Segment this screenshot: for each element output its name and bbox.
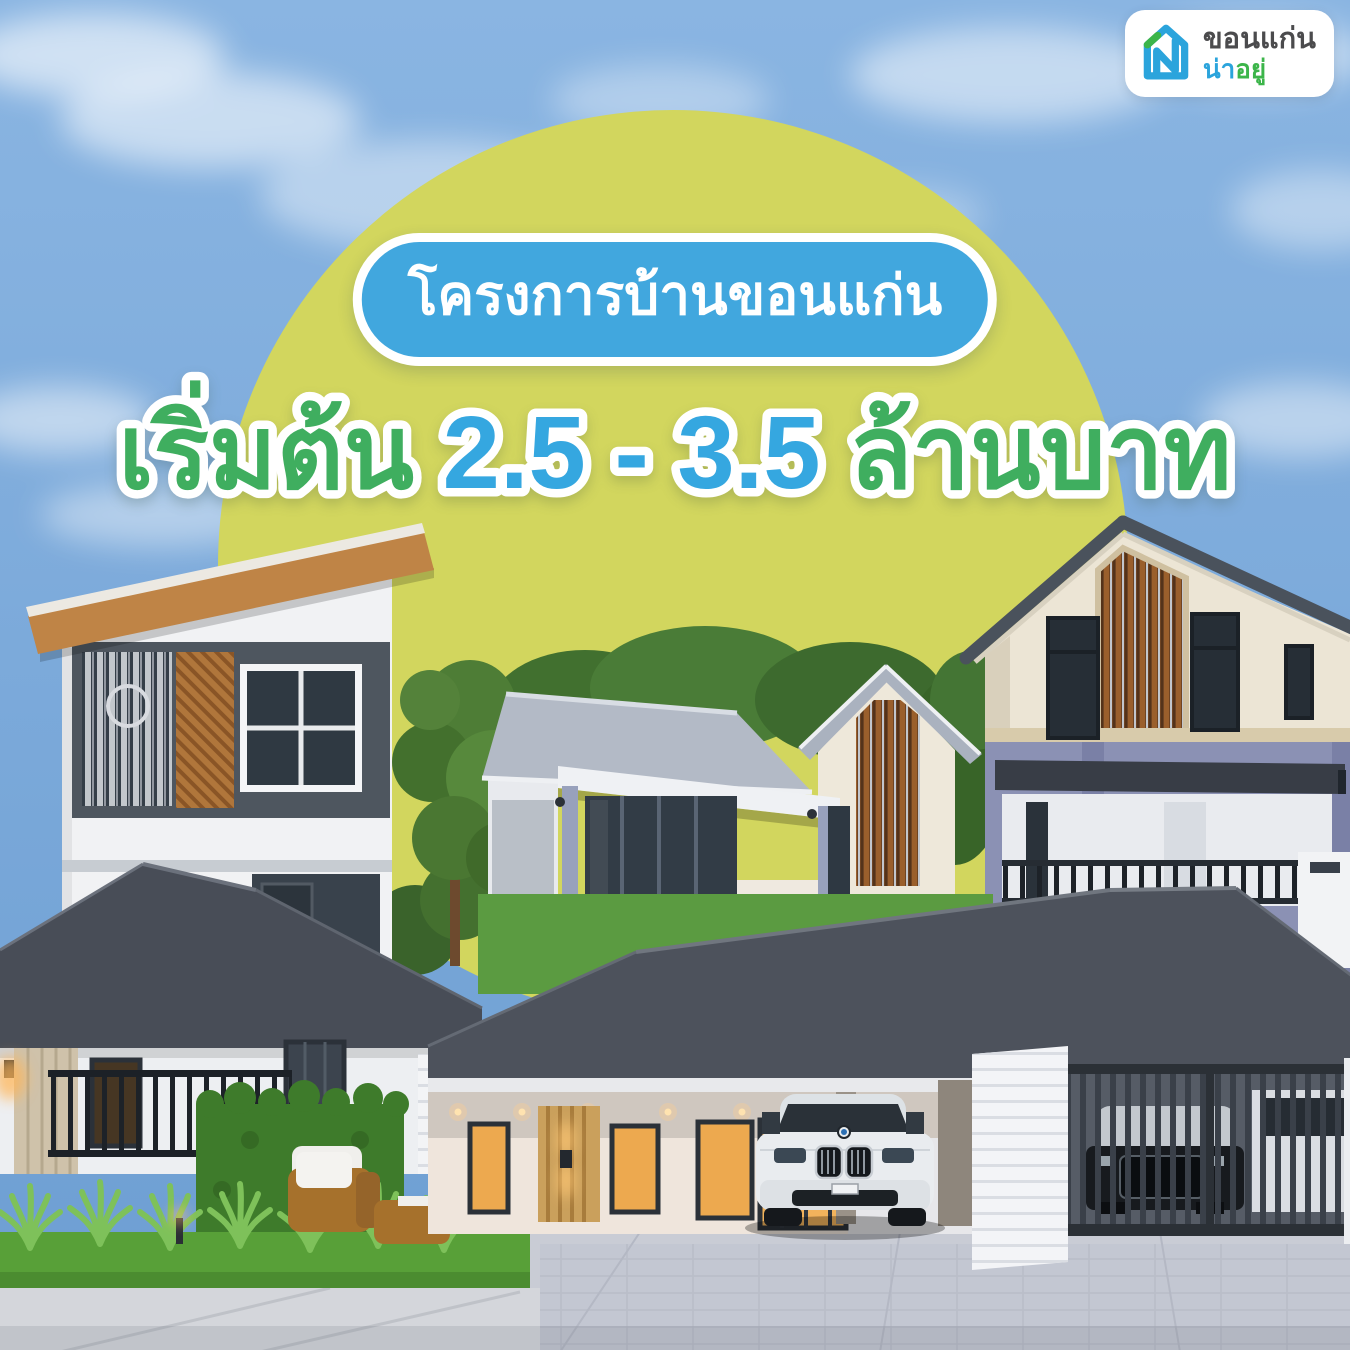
headline-suffix: ล้านบาท [849, 395, 1231, 510]
svg-text:เริ่มต้น 2.5 - 3.5 ล: เริ่มต้น 2.5 - 3.5 ล้านบาท [118, 380, 1231, 510]
project-badge-label: โครงการบ้านขอนแก่น [408, 264, 942, 326]
brand-name-line2: น่าอยู่ [1203, 55, 1316, 83]
brand-logo: ขอนแก่น น่าอยู่ [1125, 10, 1334, 97]
wood-slat-gable [856, 700, 920, 890]
headline-price-range: 2.5 - 3.5 [443, 395, 821, 510]
poster: โครงการบ้านขอนแก่น เริ่มต้น 2.5 - 3.5 ล้… [0, 0, 1350, 1350]
hero-collage-illustration [0, 0, 1350, 1350]
dark-canopy [995, 760, 1345, 794]
brand-name: ขอนแก่น น่าอยู่ [1203, 24, 1316, 83]
brand-name-line2-green: อยู่ [1235, 54, 1266, 84]
brand-name-line2-blue: น่า [1203, 54, 1235, 84]
wall-sconce [560, 1150, 572, 1168]
metal-gate [1068, 1058, 1350, 1244]
project-badge: โครงการบ้านขอนแก่น [353, 233, 997, 366]
white-fence-panel [972, 1046, 1068, 1270]
headline: เริ่มต้น 2.5 - 3.5 ล้านบาท [0, 360, 1350, 545]
house-n-logo-icon [1139, 22, 1193, 85]
headline-prefix: เริ่มต้น [118, 380, 442, 510]
brand-name-line1: ขอนแก่น [1203, 24, 1316, 55]
white-sedan-car [745, 1094, 945, 1240]
wood-slat-panel [176, 652, 234, 808]
